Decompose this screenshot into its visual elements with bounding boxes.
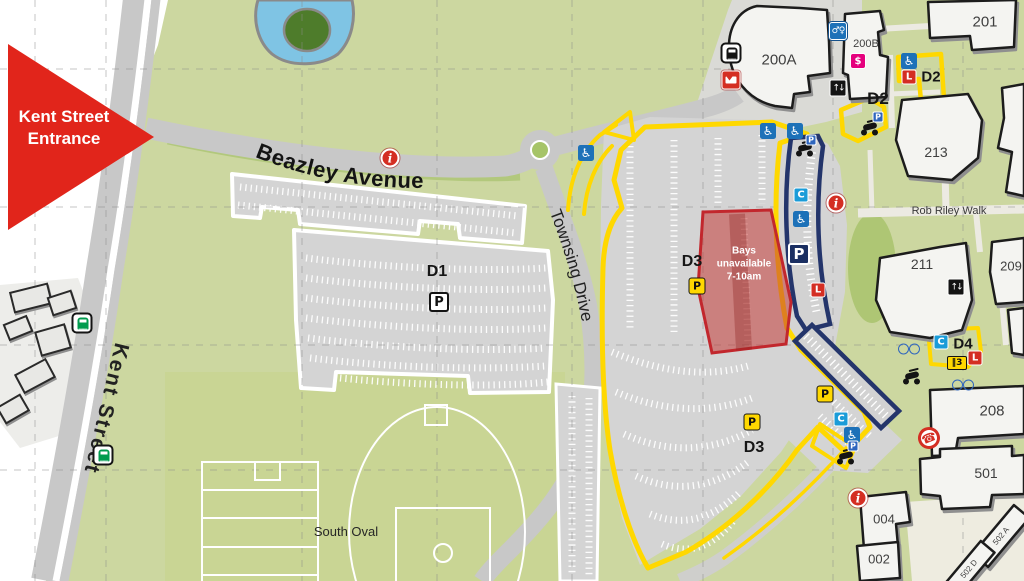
map-canvas: Beazley Avenue Townsing Drive Kent Stree… xyxy=(0,0,1024,581)
campus-map: Beazley Avenue Townsing Drive Kent Stree… xyxy=(0,0,1024,581)
building-edge-b xyxy=(1008,308,1024,355)
building-209 xyxy=(990,238,1024,304)
building-213 xyxy=(896,94,982,180)
building-002 xyxy=(857,542,900,581)
pond-island xyxy=(284,9,330,51)
rob-riley-walk-path xyxy=(858,209,1024,213)
building-200b xyxy=(843,11,888,99)
building-211 xyxy=(876,243,972,338)
parking-d1 xyxy=(294,230,553,393)
parking-townsing-strip xyxy=(556,384,600,581)
restricted-area xyxy=(698,210,791,353)
roundabout-island xyxy=(531,141,549,159)
